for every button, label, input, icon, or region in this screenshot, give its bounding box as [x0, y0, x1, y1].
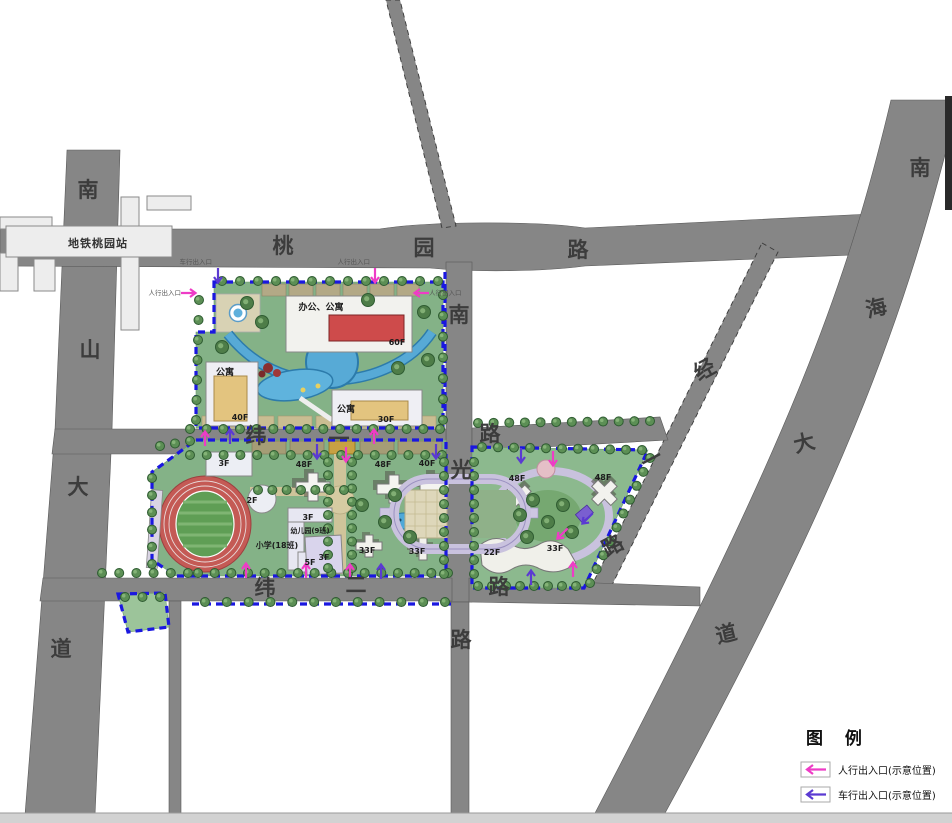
- tree-highlight: [631, 418, 635, 422]
- tree-highlight: [517, 583, 521, 587]
- tree-icon: [148, 491, 157, 500]
- tree-highlight: [298, 487, 302, 491]
- tree-highlight: [349, 552, 353, 556]
- tree-highlight: [471, 543, 475, 547]
- road-label: 一: [329, 427, 350, 451]
- tree-icon: [270, 451, 279, 460]
- tree-highlight: [149, 475, 153, 479]
- tree-highlight: [441, 459, 445, 463]
- tree-highlight: [237, 452, 241, 456]
- tree-highlight: [381, 518, 386, 523]
- floors-label: 40F: [419, 459, 436, 468]
- tree-highlight: [349, 472, 353, 476]
- floors-label: 33F: [409, 547, 426, 556]
- tree-icon: [254, 486, 263, 495]
- tree-highlight: [218, 343, 223, 348]
- tree-icon: [410, 569, 419, 578]
- tree-icon: [470, 486, 479, 495]
- tree-highlight: [420, 308, 425, 313]
- tree-icon: [311, 486, 320, 495]
- tree-highlight: [304, 426, 308, 430]
- tree-icon: [419, 425, 428, 434]
- tree-highlight: [237, 278, 241, 282]
- tree-highlight: [194, 357, 198, 361]
- entrance-annotation: 人行出入口: [149, 288, 182, 297]
- tree-highlight: [122, 594, 126, 598]
- tree-highlight: [441, 543, 445, 547]
- tree-highlight: [195, 317, 199, 321]
- road-label: 纬: [255, 576, 276, 600]
- tree-icon: [440, 570, 449, 579]
- tree-highlight: [354, 426, 358, 430]
- tree-highlight: [523, 533, 528, 538]
- road-label: 路: [480, 422, 502, 446]
- tree-icon: [324, 497, 333, 506]
- tree-highlight: [391, 491, 396, 496]
- tree-icon: [614, 417, 623, 426]
- site-master-plan: 地铁桃园站: [0, 0, 952, 823]
- tree-highlight: [440, 396, 444, 400]
- floors-label: 48F: [595, 473, 612, 482]
- tree-icon: [236, 277, 245, 286]
- tree-icon: [470, 556, 479, 565]
- tree-icon: [288, 598, 297, 607]
- floors-label: 30F: [378, 415, 395, 424]
- tree-highlight: [195, 570, 199, 574]
- tree-highlight: [475, 583, 479, 587]
- tree-icon: [186, 451, 195, 460]
- tree-highlight: [537, 419, 541, 423]
- tree-highlight: [333, 599, 337, 603]
- tree-icon: [544, 582, 553, 591]
- floors-label: 33F: [547, 544, 564, 553]
- office-apartment-label: 办公、公寓: [298, 301, 343, 313]
- tree-icon: [536, 418, 545, 427]
- road-label: 道: [51, 637, 72, 661]
- tree-icon: [186, 437, 195, 446]
- tree-highlight: [149, 492, 153, 496]
- tree-highlight: [620, 510, 624, 514]
- tree-highlight: [193, 417, 197, 421]
- tree-highlight: [204, 426, 208, 430]
- tree-highlight: [133, 570, 137, 574]
- tree-icon: [324, 537, 333, 546]
- tree-icon: [149, 569, 158, 578]
- tree-highlight: [151, 570, 155, 574]
- tree-highlight: [387, 426, 391, 430]
- tree-icon: [324, 471, 333, 480]
- tree-icon: [308, 277, 317, 286]
- tree-highlight: [471, 515, 475, 519]
- tree-icon: [612, 523, 621, 532]
- tree-highlight: [168, 570, 172, 574]
- tree-icon: [297, 486, 306, 495]
- tree-highlight: [441, 529, 445, 533]
- tree-icon: [440, 542, 449, 551]
- tree-highlight: [325, 499, 329, 503]
- tree-highlight: [220, 426, 224, 430]
- entrance-annotation: 人行出入口: [429, 288, 462, 297]
- tree-highlight: [569, 419, 573, 423]
- tree-highlight: [639, 447, 643, 451]
- tree-icon: [474, 582, 483, 591]
- tree-icon: [324, 564, 333, 573]
- tree-highlight: [349, 499, 353, 503]
- apartment-label: 公寓: [337, 403, 355, 415]
- tree-icon: [427, 569, 436, 578]
- tree-icon: [386, 425, 395, 434]
- tree-highlight: [271, 452, 275, 456]
- tree-highlight: [440, 334, 444, 338]
- tree-icon: [470, 570, 479, 579]
- tree-icon: [441, 598, 450, 607]
- tree-highlight: [341, 487, 345, 491]
- tree-highlight: [412, 570, 416, 574]
- tree-highlight: [273, 278, 277, 282]
- tree-highlight: [389, 452, 393, 456]
- tree-icon: [439, 395, 448, 404]
- tree-highlight: [116, 570, 120, 574]
- tree-highlight: [568, 528, 573, 533]
- floors-label: 3F: [318, 553, 329, 562]
- tree-highlight: [325, 565, 329, 569]
- tree-highlight: [428, 570, 432, 574]
- tree-highlight: [289, 599, 293, 603]
- tree-highlight: [149, 561, 153, 565]
- tree-icon: [353, 598, 362, 607]
- tree-icon: [398, 277, 407, 286]
- tree-icon: [574, 444, 583, 453]
- road-label: 南: [449, 303, 470, 327]
- tree-icon: [202, 451, 211, 460]
- tree-highlight: [187, 438, 191, 442]
- tree-highlight: [529, 496, 534, 501]
- tree-icon: [156, 593, 165, 602]
- tree-icon: [590, 445, 599, 454]
- tree-highlight: [312, 570, 316, 574]
- fountain-pool: [234, 309, 243, 318]
- tree-highlight: [255, 487, 259, 491]
- tree-highlight: [376, 599, 380, 603]
- floors-label: 60F: [389, 338, 406, 347]
- tree-highlight: [441, 487, 445, 491]
- tree-highlight: [594, 566, 598, 570]
- tree-highlight: [640, 469, 644, 473]
- tree-icon: [236, 425, 245, 434]
- tree-highlight: [338, 452, 342, 456]
- tree-icon: [148, 525, 157, 534]
- road-label: 桃: [273, 234, 294, 258]
- tree-icon: [362, 277, 371, 286]
- tree-highlight: [262, 570, 266, 574]
- tree-highlight: [358, 501, 363, 506]
- tree-highlight: [545, 583, 549, 587]
- tree-icon: [572, 582, 581, 591]
- tree-highlight: [506, 420, 510, 424]
- tree-highlight: [246, 599, 250, 603]
- tree-highlight: [591, 446, 595, 450]
- tree-icon: [397, 598, 406, 607]
- tree-highlight: [417, 278, 421, 282]
- tree-highlight: [607, 446, 611, 450]
- tree-icon: [586, 579, 595, 588]
- tree-icon: [440, 486, 449, 495]
- tree-icon: [166, 569, 175, 578]
- tree-icon: [470, 528, 479, 537]
- tree-icon: [272, 277, 281, 286]
- tree-icon: [192, 416, 201, 425]
- tree-highlight: [364, 296, 369, 301]
- tree-highlight: [157, 594, 161, 598]
- tree-icon: [253, 451, 262, 460]
- tree-highlight: [320, 426, 324, 430]
- floors-label: 40F: [232, 413, 249, 422]
- tree-highlight: [600, 552, 604, 556]
- tree-highlight: [544, 518, 549, 523]
- tree-icon: [470, 500, 479, 509]
- tree-highlight: [471, 487, 475, 491]
- tree-highlight: [194, 377, 198, 381]
- tree-icon: [348, 550, 357, 559]
- tree-icon: [121, 593, 130, 602]
- tree-highlight: [406, 533, 411, 538]
- tree-highlight: [291, 278, 295, 282]
- floors-label: 48F: [375, 460, 392, 469]
- tree-highlight: [202, 599, 206, 603]
- tree-highlight: [363, 278, 367, 282]
- tree-highlight: [623, 447, 627, 451]
- tree-highlight: [627, 497, 631, 501]
- tree-icon: [380, 277, 389, 286]
- tree-highlight: [243, 299, 248, 304]
- tree-icon: [470, 542, 479, 551]
- tree-highlight: [394, 364, 399, 369]
- right-edge-strip: [945, 96, 952, 210]
- tree-icon: [606, 445, 615, 454]
- tree-icon: [222, 598, 231, 607]
- tree-icon: [434, 277, 443, 286]
- tree-highlight: [157, 443, 161, 447]
- tree-highlight: [284, 487, 288, 491]
- tree-highlight: [355, 599, 359, 603]
- tree-highlight: [193, 397, 197, 401]
- tree-highlight: [420, 426, 424, 430]
- tree-icon: [419, 598, 428, 607]
- tree-highlight: [325, 538, 329, 542]
- tree-highlight: [270, 426, 274, 430]
- tree-highlight: [212, 570, 216, 574]
- tree-highlight: [573, 583, 577, 587]
- tree-icon: [440, 528, 449, 537]
- tree-icon: [542, 444, 551, 453]
- tree-highlight: [442, 599, 446, 603]
- tree-icon: [193, 376, 202, 385]
- entrance-annotation: 车行出入口: [180, 257, 213, 266]
- tree-icon: [348, 537, 357, 546]
- tree-highlight: [471, 571, 475, 575]
- tree-icon: [348, 524, 357, 533]
- tree-icon: [148, 542, 157, 551]
- tree-highlight: [471, 557, 475, 561]
- tree-highlight: [475, 420, 479, 424]
- tree-icon: [439, 311, 448, 320]
- floors-label: 3F: [302, 513, 313, 522]
- road-label: 光: [450, 458, 472, 482]
- tree-icon: [470, 514, 479, 523]
- tree-highlight: [288, 452, 292, 456]
- tree-icon: [646, 417, 655, 426]
- tree-highlight: [440, 375, 444, 379]
- tree-highlight: [139, 594, 143, 598]
- pond-detail: [301, 388, 306, 393]
- tree-icon: [630, 417, 639, 426]
- tree-highlight: [614, 524, 618, 528]
- tree-icon: [505, 418, 514, 427]
- tree-highlight: [559, 445, 563, 449]
- rock-icon: [273, 369, 281, 377]
- tree-icon: [404, 451, 413, 460]
- tree-icon: [331, 598, 340, 607]
- tree-icon: [526, 443, 535, 452]
- road-label: 路: [568, 238, 590, 262]
- tree-highlight: [349, 538, 353, 542]
- tree-highlight: [372, 452, 376, 456]
- tree-icon: [302, 425, 311, 434]
- tree-highlight: [399, 278, 403, 282]
- tree-icon: [622, 445, 631, 454]
- tree-icon: [436, 425, 445, 434]
- tree-icon: [156, 442, 165, 451]
- tree-highlight: [395, 570, 399, 574]
- tree-icon: [115, 569, 124, 578]
- tree-icon: [344, 277, 353, 286]
- tree-highlight: [305, 452, 309, 456]
- tree-highlight: [258, 318, 263, 323]
- tree-highlight: [424, 356, 429, 361]
- tree-icon: [132, 569, 141, 578]
- tree-icon: [440, 458, 449, 467]
- floors-label: 22F: [484, 548, 501, 557]
- legend-item-label: 车行出入口(示意位置): [838, 789, 936, 802]
- tree-highlight: [355, 452, 359, 456]
- road-label: 南: [910, 156, 931, 180]
- tree-icon: [192, 396, 201, 405]
- tree-icon: [310, 598, 319, 607]
- tree-icon: [184, 569, 193, 578]
- tree-icon: [440, 556, 449, 565]
- tree-icon: [348, 511, 357, 520]
- road-label: 路: [489, 575, 511, 599]
- tree-icon: [348, 471, 357, 480]
- tree-highlight: [435, 278, 439, 282]
- floors-label: 5F: [304, 558, 315, 567]
- tree-highlight: [149, 509, 153, 513]
- tree-icon: [348, 484, 357, 493]
- tree-highlight: [149, 527, 153, 531]
- tree-highlight: [600, 418, 604, 422]
- road-label: 山: [80, 338, 101, 362]
- tree-icon: [632, 481, 641, 490]
- tree-highlight: [437, 426, 441, 430]
- tree-icon: [439, 353, 448, 362]
- tree-icon: [599, 417, 608, 426]
- tree-icon: [244, 598, 253, 607]
- tree-icon: [282, 486, 291, 495]
- tree-highlight: [349, 512, 353, 516]
- tree-icon: [440, 514, 449, 523]
- tree-highlight: [309, 278, 313, 282]
- tree-highlight: [269, 487, 273, 491]
- tree-highlight: [325, 459, 329, 463]
- tree-icon: [268, 486, 277, 495]
- tree-highlight: [312, 487, 316, 491]
- tree-highlight: [204, 452, 208, 456]
- rock-icon: [263, 363, 273, 373]
- tree-icon: [194, 336, 203, 345]
- tree-icon: [148, 474, 157, 483]
- tree-highlight: [527, 445, 531, 449]
- tree-icon: [193, 356, 202, 365]
- tree-icon: [186, 425, 195, 434]
- tree-icon: [324, 458, 333, 467]
- tree-highlight: [471, 501, 475, 505]
- tree-icon: [439, 416, 448, 425]
- apartment-label: 公寓: [216, 366, 234, 378]
- tree-icon: [402, 425, 411, 434]
- road-south-lane: [169, 601, 181, 813]
- tree-icon: [294, 569, 303, 578]
- tree-highlight: [441, 557, 445, 561]
- road-label: 二: [346, 573, 367, 597]
- tree-highlight: [422, 452, 426, 456]
- tree-icon: [340, 486, 349, 495]
- tree-icon: [370, 451, 379, 460]
- legend-item-label: 人行出入口(示意位置): [838, 764, 936, 777]
- kindergarten-label: 幼儿园(9班): [290, 526, 329, 535]
- tree-highlight: [349, 485, 353, 489]
- tree-highlight: [185, 570, 189, 574]
- tree-icon: [439, 374, 448, 383]
- entrance-annotation: 人行出入口: [338, 257, 371, 266]
- tree-highlight: [381, 278, 385, 282]
- tree-icon: [227, 569, 236, 578]
- tree-icon: [440, 472, 449, 481]
- tree-icon: [592, 565, 601, 574]
- plan-svg: 地铁桃园站: [0, 0, 952, 823]
- tree-icon: [520, 418, 529, 427]
- tree-icon: [269, 425, 278, 434]
- tree-highlight: [254, 452, 258, 456]
- road-label: 路: [451, 628, 473, 652]
- tree-highlight: [441, 501, 445, 505]
- tree-highlight: [441, 473, 445, 477]
- tree-highlight: [228, 570, 232, 574]
- tree-highlight: [221, 452, 225, 456]
- floors-label: 3F: [218, 459, 229, 468]
- tree-highlight: [405, 452, 409, 456]
- tree-icon: [626, 495, 635, 504]
- tree-icon: [236, 451, 245, 460]
- tree-highlight: [311, 599, 315, 603]
- tree-icon: [195, 296, 204, 305]
- tree-icon: [619, 509, 628, 518]
- tree-icon: [194, 316, 203, 325]
- tree-highlight: [575, 446, 579, 450]
- tree-icon: [310, 569, 319, 578]
- tree-highlight: [327, 487, 331, 491]
- tree-icon: [352, 425, 361, 434]
- tree-icon: [324, 511, 333, 520]
